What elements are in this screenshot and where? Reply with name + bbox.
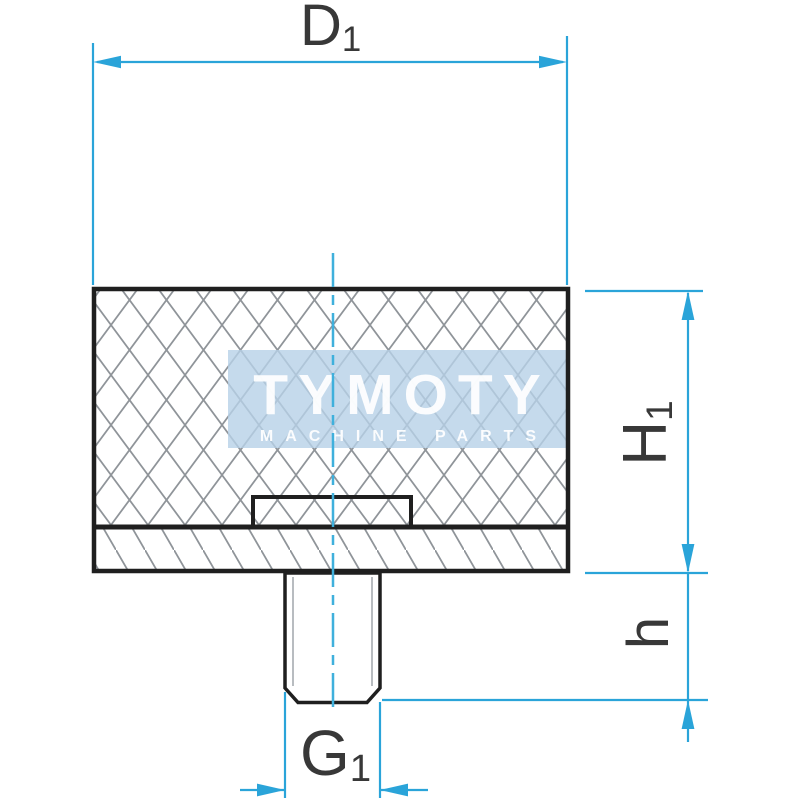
h-dimension	[382, 573, 708, 742]
d1-label: D1	[300, 0, 361, 59]
h1-arrow-up	[682, 291, 695, 320]
base-plate-hatch	[94, 527, 568, 571]
h1-label: H1	[611, 400, 680, 465]
d1-dimension	[93, 36, 567, 285]
rubber-mount-drawing: TYMOTY MACHINE PARTS	[0, 0, 800, 800]
h-arrow-up	[682, 700, 695, 729]
h1-arrow-down	[682, 544, 695, 573]
technical-drawing-canvas: TYMOTY MACHINE PARTS	[0, 0, 800, 800]
d1-arrow-right	[539, 56, 567, 68]
h-label: h	[616, 617, 681, 649]
g1-label: G1	[300, 717, 371, 790]
g1-arrow-right	[257, 784, 285, 797]
watermark-brand: TYMOTY	[253, 363, 551, 427]
g1-arrow-left	[380, 784, 408, 797]
d1-arrow-left	[93, 56, 121, 68]
watermark-tagline: MACHINE PARTS	[260, 428, 548, 445]
watermark: TYMOTY MACHINE PARTS	[228, 350, 568, 448]
